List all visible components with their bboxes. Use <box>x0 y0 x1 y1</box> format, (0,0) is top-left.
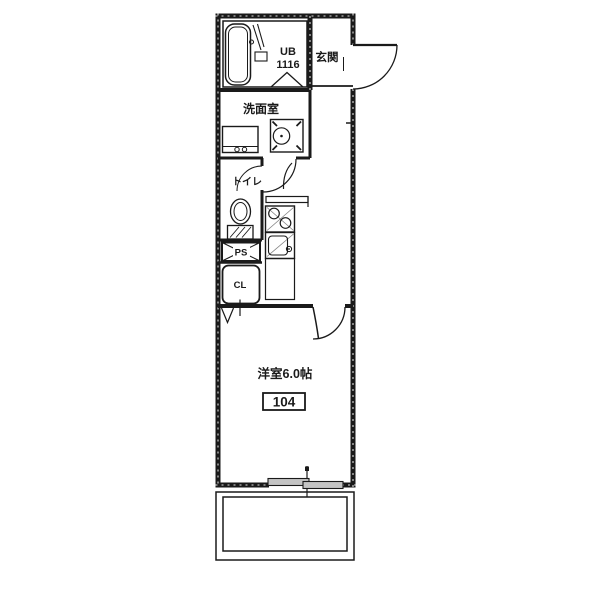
bathtub <box>226 24 251 85</box>
vanity-sink <box>223 127 259 153</box>
closet-door-fold <box>222 308 234 323</box>
label-unit-bath-size: 1116 <box>276 59 299 71</box>
kitchen-cabinet <box>266 259 295 300</box>
bathtub-inner <box>229 27 248 82</box>
label-room-number: 104 <box>273 395 296 410</box>
toilet-tank <box>228 226 254 240</box>
floor-plan-drawing: UB 1116 玄関 洗面室 <box>0 0 600 600</box>
label-toilet: トイレ <box>232 176 262 188</box>
kitchen-unit <box>266 196 309 300</box>
label-pipe-space: PS <box>235 248 248 259</box>
balcony-inner <box>223 497 347 551</box>
label-entrance: 玄関 <box>316 50 339 64</box>
label-main-room: 洋室6.0帖 <box>258 366 313 381</box>
balcony-outer <box>216 492 354 560</box>
bath-folding-door <box>271 73 303 88</box>
kitchen-counter-bar <box>266 197 308 203</box>
entrance-door-arc <box>353 45 397 89</box>
entrance-area <box>344 45 398 89</box>
shower-fixture <box>250 24 268 61</box>
kitchen-sink <box>266 233 295 259</box>
closet-box <box>222 266 260 323</box>
stove-burners <box>266 206 295 232</box>
floor-plan-page: UB 1116 玄関 洗面室 <box>0 0 600 600</box>
balcony <box>216 492 354 560</box>
label-unit-bath: UB <box>280 46 296 58</box>
label-closet: CL <box>234 280 247 291</box>
washing-machine-pan <box>271 120 304 153</box>
room-door-leaf <box>313 307 319 339</box>
toilet-bowl-inner <box>234 203 247 221</box>
label-washroom: 洗面室 <box>243 101 279 116</box>
